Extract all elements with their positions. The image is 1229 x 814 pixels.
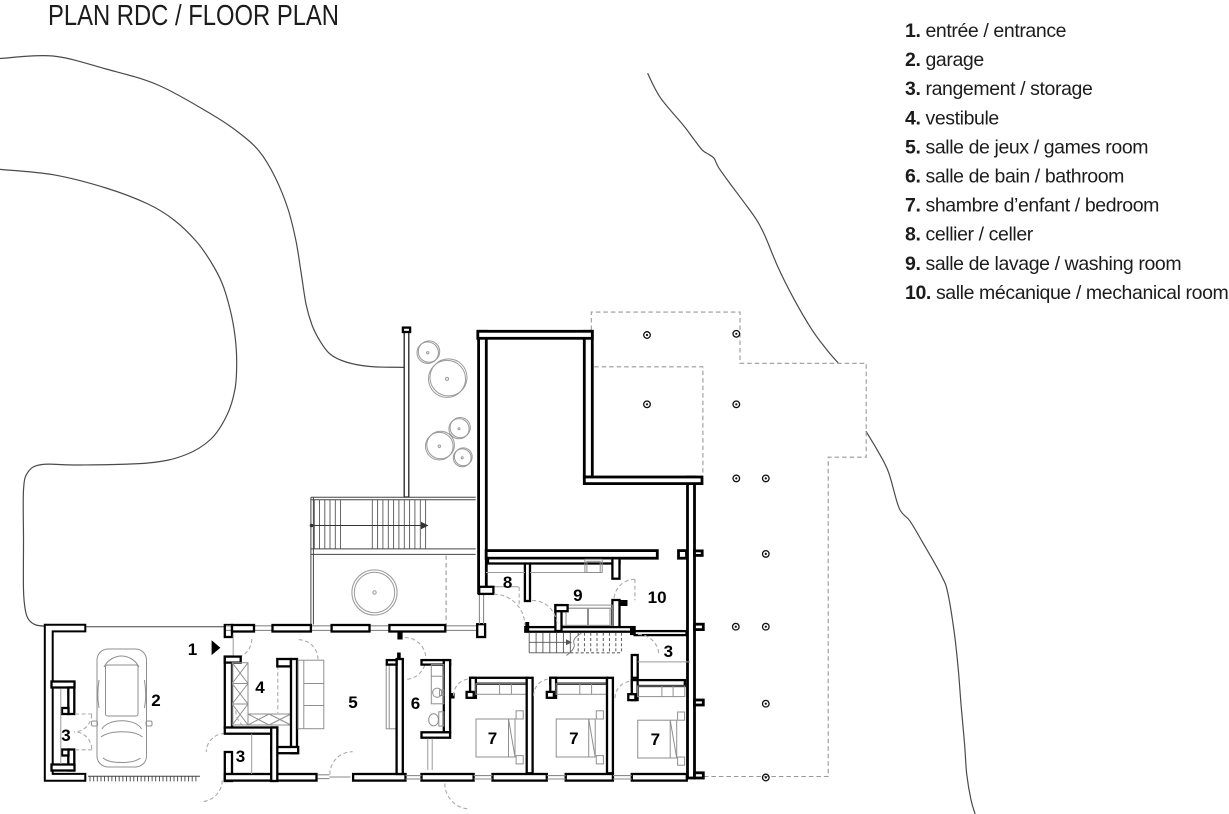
svg-text:7: 7 — [569, 729, 578, 748]
svg-text:10. salle mécanique / mechanic: 10. salle mécanique / mechanical room — [905, 282, 1228, 304]
svg-text:3: 3 — [236, 747, 245, 766]
svg-text:2. garage: 2. garage — [905, 49, 984, 71]
svg-text:PLAN RDC / FLOOR PLAN: PLAN RDC / FLOOR PLAN — [48, 0, 339, 32]
svg-text:9: 9 — [573, 586, 582, 605]
svg-text:2: 2 — [151, 691, 160, 710]
svg-text:10: 10 — [648, 588, 667, 607]
svg-text:7: 7 — [651, 730, 660, 749]
svg-text:1. entrée / entrance: 1. entrée / entrance — [905, 20, 1066, 42]
svg-text:8. cellier / celler: 8. cellier / celler — [905, 224, 1034, 246]
svg-text:4. vestibule: 4. vestibule — [905, 107, 999, 129]
svg-text:3: 3 — [664, 642, 673, 661]
svg-text:5. salle de jeux / games room: 5. salle de jeux / games room — [905, 136, 1148, 158]
svg-text:1: 1 — [188, 640, 197, 659]
svg-text:3. rangement / storage: 3. rangement / storage — [905, 78, 1092, 100]
svg-text:8: 8 — [503, 573, 512, 592]
svg-text:4: 4 — [255, 678, 265, 697]
svg-text:7. shambre d’enfant / bedroom: 7. shambre d’enfant / bedroom — [905, 195, 1159, 217]
svg-text:6. salle de bain / bathroom: 6. salle de bain / bathroom — [905, 166, 1124, 188]
svg-text:7: 7 — [488, 729, 497, 748]
svg-text:3: 3 — [61, 726, 70, 745]
svg-text:6: 6 — [411, 694, 420, 713]
svg-text:5: 5 — [348, 693, 357, 712]
svg-text:9. salle de lavage / washing r: 9. salle de lavage / washing room — [905, 253, 1181, 275]
